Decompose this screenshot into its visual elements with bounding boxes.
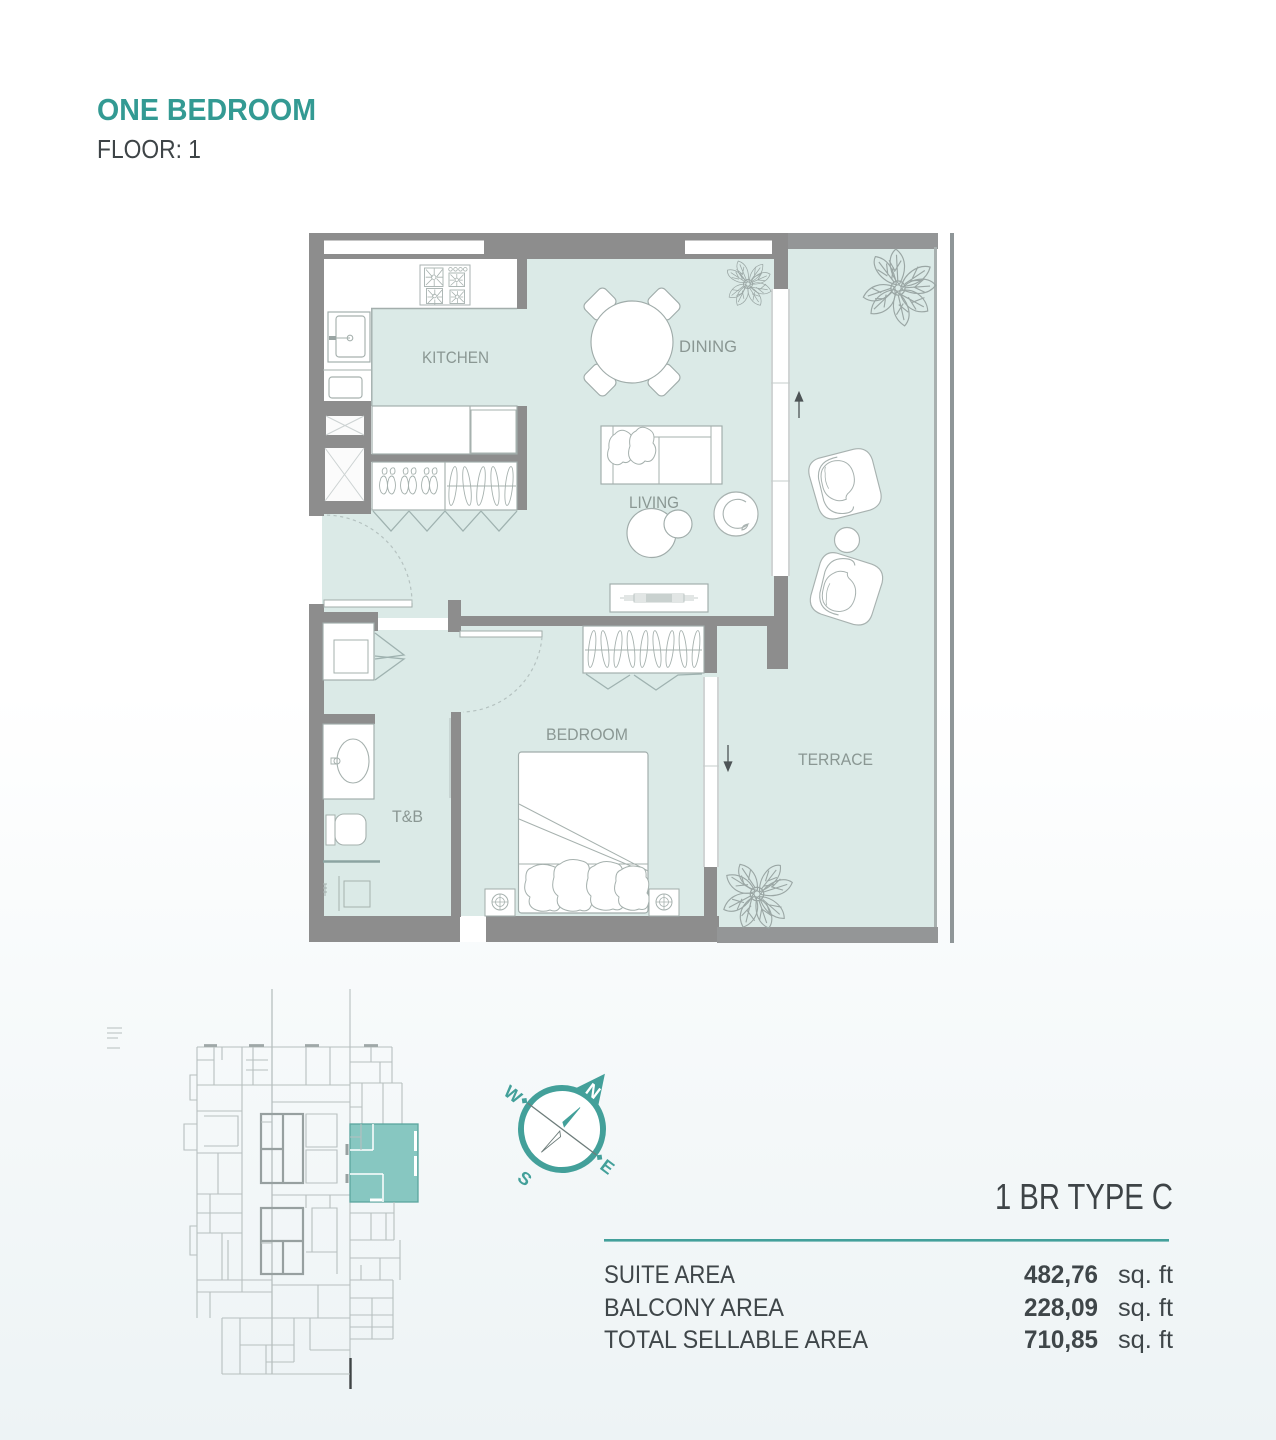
svg-text:DINING: DINING bbox=[679, 337, 737, 356]
svg-text:KITCHEN: KITCHEN bbox=[422, 348, 489, 367]
svg-text:FLOOR: 1: FLOOR: 1 bbox=[97, 134, 201, 164]
svg-text:LIVING: LIVING bbox=[629, 493, 679, 512]
svg-text:sq. ft: sq. ft bbox=[1118, 1326, 1173, 1354]
svg-text:T&B: T&B bbox=[392, 807, 423, 826]
svg-text:TERRACE: TERRACE bbox=[798, 750, 873, 769]
svg-text:ONE BEDROOM: ONE BEDROOM bbox=[97, 92, 316, 127]
svg-text:W: W bbox=[500, 1081, 526, 1107]
svg-text:TOTAL SELLABLE AREA: TOTAL SELLABLE AREA bbox=[604, 1326, 868, 1354]
svg-text:BEDROOM: BEDROOM bbox=[546, 725, 628, 744]
svg-text:BALCONY AREA: BALCONY AREA bbox=[604, 1294, 784, 1322]
svg-text:482,76: 482,76 bbox=[1024, 1261, 1098, 1289]
svg-text:sq. ft: sq. ft bbox=[1118, 1294, 1173, 1322]
svg-text:710,85: 710,85 bbox=[1024, 1326, 1098, 1354]
svg-text:S: S bbox=[514, 1167, 536, 1190]
svg-text:1 BR TYPE C: 1 BR TYPE C bbox=[995, 1176, 1173, 1217]
svg-text:228,09: 228,09 bbox=[1024, 1294, 1098, 1322]
svg-text:SUITE AREA: SUITE AREA bbox=[604, 1261, 735, 1289]
svg-text:sq. ft: sq. ft bbox=[1118, 1261, 1173, 1289]
